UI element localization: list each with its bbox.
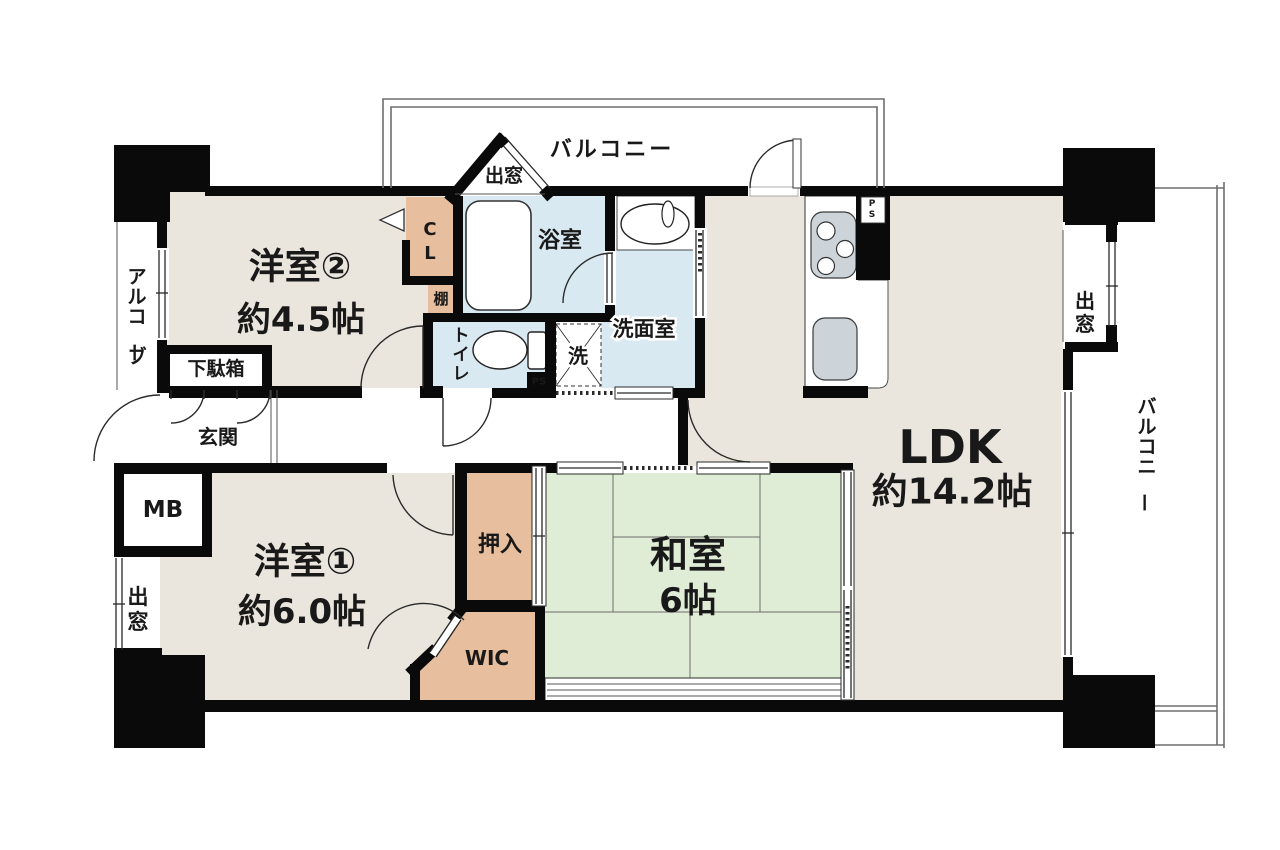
western2-label: 洋室② <box>249 247 351 288</box>
washroom-label: 洗面室 <box>613 317 676 341</box>
western2-size: 約4.5帖 <box>237 300 365 340</box>
oshiire-fusuma <box>532 466 546 606</box>
window-bay-left <box>113 558 125 650</box>
western-room1-floor-ext2 <box>203 650 223 705</box>
wic-label: WIC <box>465 646 509 670</box>
shoe-cabinet-label: 下駄箱 <box>187 357 244 380</box>
western-room1-floor-ext <box>160 555 220 655</box>
bathtub <box>466 201 531 310</box>
entrance-door-swing <box>94 395 160 461</box>
japanese-room-label: 和室 <box>650 533 726 577</box>
entrance-label: 玄関 <box>198 425 238 449</box>
bay-window-right-label: 出窓 <box>1075 289 1095 336</box>
pipe-space-top-label: PS <box>869 199 876 220</box>
ldk-label: LDK <box>898 420 1003 474</box>
bay-window-top-label: 出窓 <box>485 164 523 187</box>
western1-label: 洋室① <box>254 542 356 583</box>
washroom-east-door <box>693 228 707 318</box>
burner <box>837 241 854 258</box>
bay-window-left-label: 出窓 <box>128 585 149 634</box>
japanese-north-doors <box>557 462 770 474</box>
toilet-door-swing <box>443 398 491 446</box>
washbasin-faucet <box>662 201 674 227</box>
burner <box>817 222 835 240</box>
washer-label: 洗 <box>568 344 588 368</box>
balcony-door-swing <box>750 140 798 188</box>
entrance-doorway <box>155 393 169 463</box>
washbasin <box>621 204 689 244</box>
window-western2 <box>155 248 169 340</box>
western1-size: 約6.0帖 <box>238 592 366 632</box>
window-ldk-east <box>1061 390 1075 657</box>
shelf-label: 棚 <box>433 290 448 308</box>
pipe-space-toilet-label: PS <box>532 377 547 388</box>
balcony-right-label: バルコニー <box>1132 396 1156 512</box>
alcove-label: アルコーブ <box>122 266 146 368</box>
burner <box>818 258 835 275</box>
toilet-tank <box>528 332 546 369</box>
japanese-room-size: 6帖 <box>659 581 717 621</box>
bathroom-label: 浴室 <box>538 228 582 254</box>
balcony-top-label: バルコニー <box>550 138 675 163</box>
ldk-floor-door <box>686 390 706 466</box>
balcony-door-leaf <box>793 139 801 188</box>
bathroom-doorway <box>604 251 616 305</box>
sink <box>813 318 857 380</box>
floorplan: 洋室② 約4.5帖 洋室① 約6.0帖 和室 6帖 LDK 約14.2帖 浴室 … <box>0 0 1280 850</box>
ldk-size: 約14.2帖 <box>872 472 1033 513</box>
oshiire-label: 押入 <box>478 532 522 558</box>
meter-box-label: MB <box>143 497 183 523</box>
kitchen-return <box>858 280 888 388</box>
toilet-bowl <box>473 331 527 369</box>
japanese-east-fusuma <box>841 470 854 700</box>
floorplan-drawing: 洋室② 約4.5帖 洋室① 約6.0帖 和室 6帖 LDK 約14.2帖 浴室 … <box>0 0 1280 850</box>
washroom-south-door <box>556 387 673 399</box>
toilet-label: トイレ <box>453 326 470 384</box>
balcony-door-threshold <box>750 187 798 196</box>
